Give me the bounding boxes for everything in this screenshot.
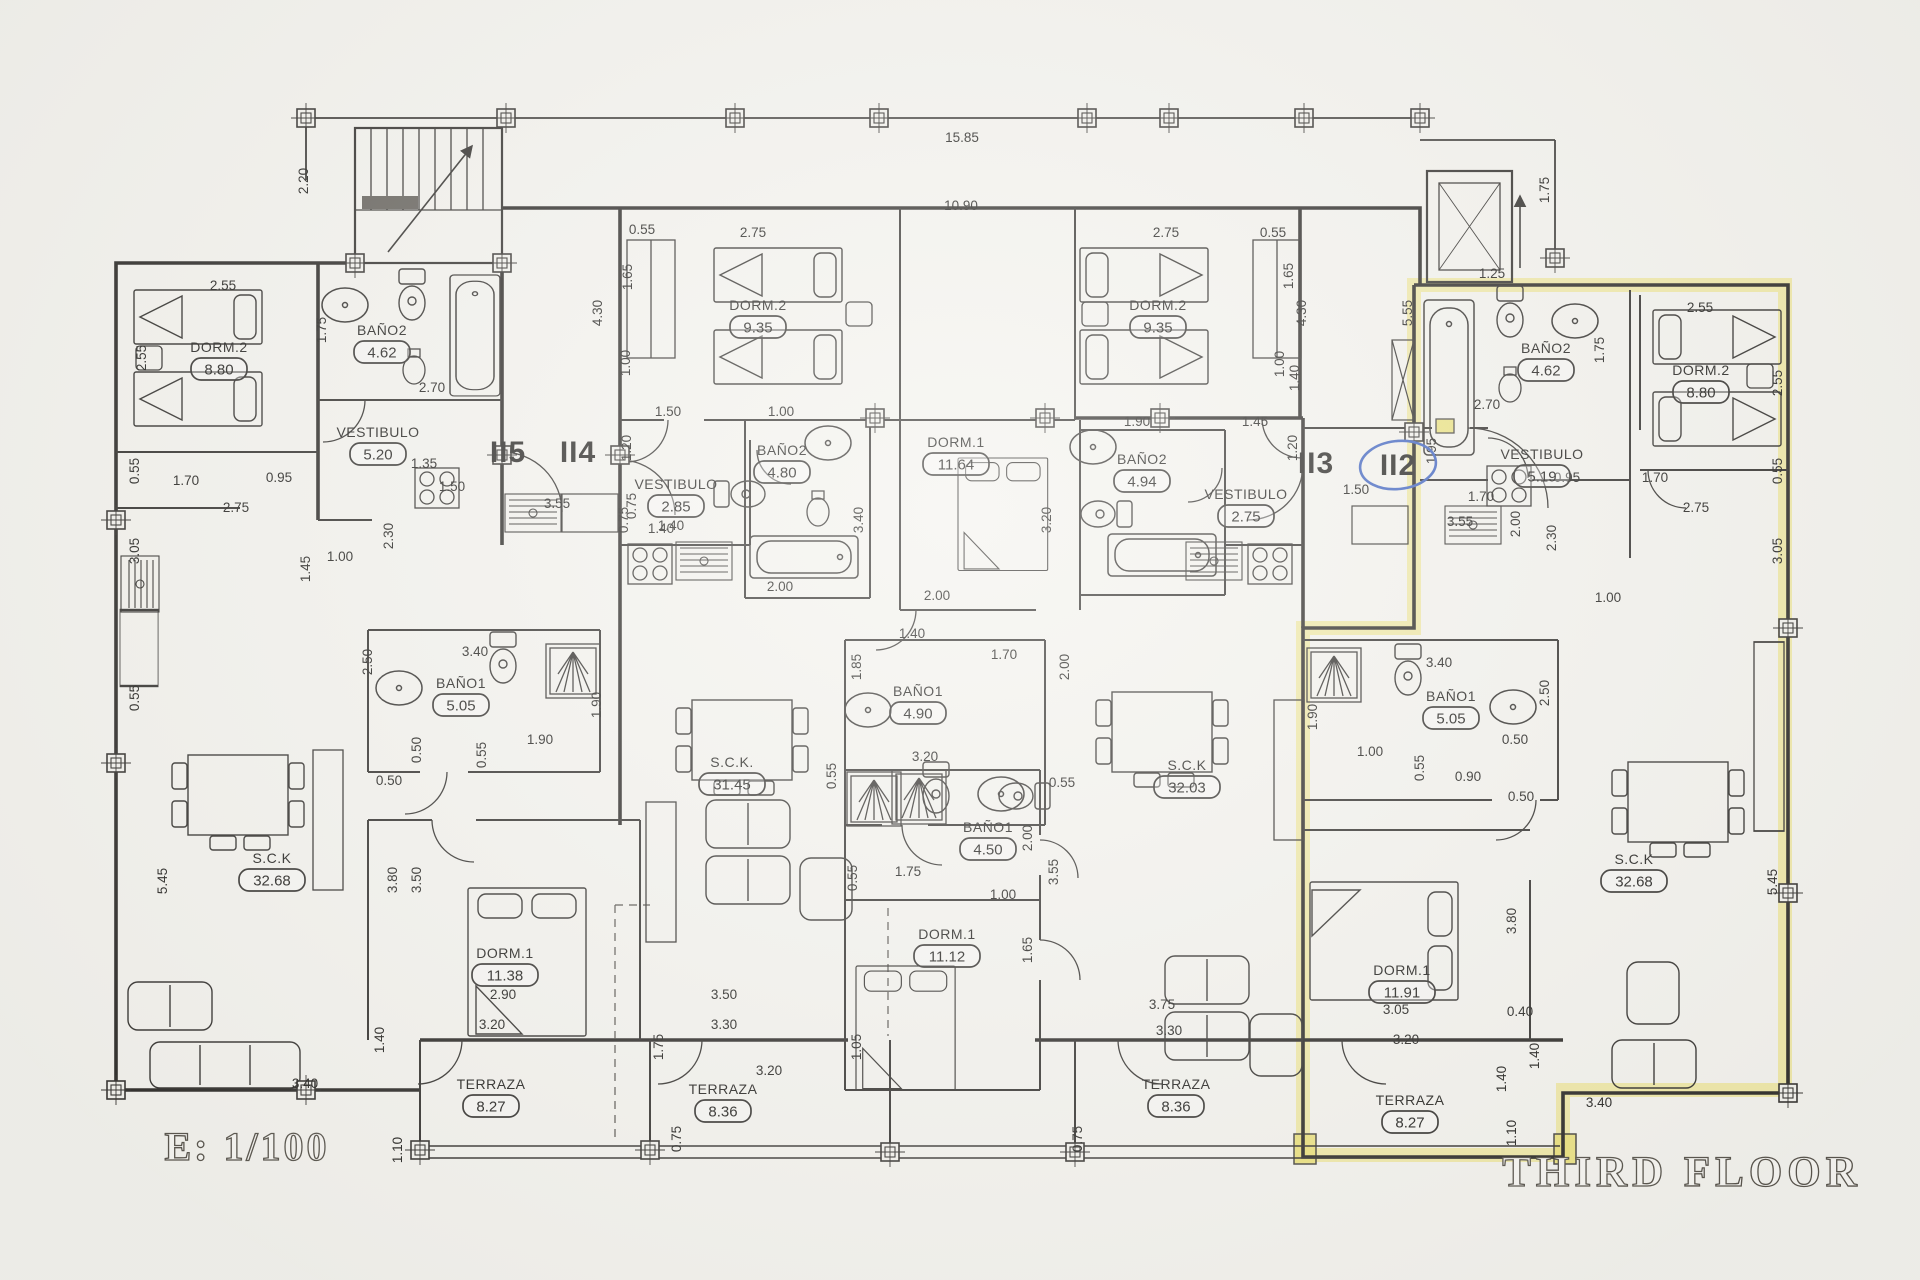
dimension-label: 2.70 [419, 380, 445, 395]
dimension-label: 1.50 [1343, 482, 1369, 497]
dimension-label: 2.75 [1683, 500, 1709, 515]
dimension-label: 0.55 [1770, 458, 1785, 484]
room-area-value: 2.75 [1231, 509, 1260, 526]
dimension-label: 1.40 [658, 518, 684, 533]
room-area-value: 11.38 [487, 968, 523, 985]
dimension-label: 1.40 [372, 1027, 387, 1053]
dimension-label: 2.75 [1153, 225, 1179, 240]
dimension-label: 4.30 [590, 300, 605, 326]
dimension-label: 1.00 [1272, 351, 1287, 377]
dimension-label: 1.40 [1287, 365, 1302, 391]
dimension-label: 10.90 [944, 198, 978, 213]
dimension-label: 1.50 [655, 404, 681, 419]
scale-label: E: 1/100 [164, 1124, 329, 1169]
dimension-label: 3.75 [1149, 997, 1175, 1012]
dimension-label: 1.00 [1595, 590, 1621, 605]
dimension-label: 2.90 [490, 987, 516, 1002]
dimension-label: 3.55 [1447, 514, 1473, 529]
room-name: DORM.1 [918, 926, 975, 942]
dimension-label: 0.55 [1049, 775, 1075, 790]
room-name: BAÑO1 [436, 675, 486, 691]
room-name: DORM.2 [1672, 362, 1729, 378]
room-area-value: 31.45 [713, 777, 751, 794]
room-label-bao2-ii4: BAÑO24.80 [754, 442, 810, 483]
room-area-value: 5.05 [1436, 711, 1465, 728]
room-name: S.C.K [252, 850, 291, 866]
room-area-value: 5.05 [446, 698, 475, 715]
room-name: TERRAZA [457, 1076, 526, 1092]
dimension-label: 3.40 [1586, 1095, 1612, 1110]
room-label-bao2-ii2: BAÑO24.62 [1518, 340, 1574, 381]
dimension-label: 1.65 [620, 264, 635, 290]
dimension-label: 1.75 [1537, 177, 1552, 203]
room-label-bao2-ii3: BAÑO24.94 [1114, 451, 1170, 492]
room-area-value: 4.62 [1531, 363, 1560, 380]
dimension-label: 0.55 [1260, 225, 1286, 240]
unit-label-ii4: II4 [560, 436, 596, 469]
dimension-label: 3.20 [756, 1063, 782, 1078]
dimension-label: 3.30 [1156, 1023, 1182, 1038]
room-area-value: 9.35 [743, 320, 772, 337]
room-area-value: 4.90 [903, 706, 932, 723]
dimension-label: 1.40 [1494, 1066, 1509, 1092]
room-label-dorm1-ii2: DORM.111.91 [1369, 962, 1435, 1003]
dimension-label: 0.55 [474, 742, 489, 768]
room-name: S.C.K [1167, 757, 1206, 773]
room-label-bao2-ii5: BAÑO24.62 [354, 322, 410, 363]
dimension-label: 1.90 [527, 732, 553, 747]
dimension-label: 3.80 [1504, 908, 1519, 934]
dimension-label: 1.85 [849, 654, 864, 680]
room-area-value: 5.20 [363, 447, 392, 464]
dimension-label: 3.20 [479, 1017, 505, 1032]
dimension-label: 1.70 [1468, 489, 1494, 504]
unit-id: II5 [490, 436, 526, 469]
dimension-label: 2.55 [134, 345, 149, 371]
room-area-value: 11.91 [1384, 985, 1420, 1002]
dimension-label: 2.75 [223, 500, 249, 515]
dimension-label: 1.00 [990, 887, 1016, 902]
room-name: BAÑO1 [1426, 688, 1476, 704]
dimension-label: 1.45 [298, 556, 313, 582]
room-name: DORM.1 [927, 434, 984, 450]
room-name: VESTIBULO [634, 476, 717, 492]
floor-title: THIRD FLOOR [1502, 1149, 1862, 1196]
room-label-bao1-ii2: BAÑO15.05 [1423, 688, 1479, 729]
room-name: VESTIBULO [1204, 486, 1287, 502]
dimension-label: 0.40 [1507, 1004, 1533, 1019]
room-label-dorm2-ii3: DORM.29.35 [1129, 297, 1186, 338]
dimension-label: 2.70 [1474, 397, 1500, 412]
dimension-label: 1.70 [173, 473, 199, 488]
dimension-label: 3.55 [544, 496, 570, 511]
unit-label-ii5: II5 [490, 436, 526, 469]
dimension-label: 0.50 [409, 737, 424, 763]
dimension-label: 2.00 [1057, 654, 1072, 680]
room-label-dorm2-ii5: DORM.28.80 [190, 339, 247, 380]
room-label-terraza-ii5: TERRAZA8.27 [457, 1076, 526, 1117]
dimension-label: 3.20 [1039, 507, 1054, 533]
dimension-label: 3.30 [711, 1017, 737, 1032]
dimension-label: 1.00 [768, 404, 794, 419]
room-label-bao1-ii5: BAÑO15.05 [433, 675, 489, 716]
dimension-label: 1.70 [991, 647, 1017, 662]
room-label-terraza-ii3: TERRAZA8.36 [1142, 1076, 1211, 1117]
room-name: DORM.2 [729, 297, 786, 313]
dimension-label: 0.55 [629, 222, 655, 237]
dimension-label: 2.55 [1687, 300, 1713, 315]
dimension-label: 0.90 [1455, 769, 1481, 784]
dimension-label: 0.75 [624, 493, 639, 519]
dimension-label: 2.30 [1544, 525, 1559, 551]
room-name: BAÑO2 [1117, 451, 1167, 467]
room-label-bao1-ii3: BAÑO14.50 [960, 819, 1016, 860]
dimension-label: 4.30 [1294, 300, 1309, 326]
dimension-label: 2.00 [767, 579, 793, 594]
room-area-value: 4.50 [973, 842, 1002, 859]
dimension-label: 2.50 [1537, 680, 1552, 706]
room-name: VESTIBULO [336, 424, 419, 440]
dimension-label: 3.05 [1383, 1002, 1409, 1017]
room-area-value: 4.80 [767, 465, 796, 482]
room-label-dorm2-ii4: DORM.29.35 [729, 297, 786, 338]
room-label-dorm1-ii4: DORM.111.64 [923, 434, 989, 475]
room-name: BAÑO2 [757, 442, 807, 458]
dimension-label: 1.75 [314, 317, 329, 343]
dimension-label: 3.20 [1393, 1032, 1419, 1047]
dimension-label: 0.50 [1502, 732, 1528, 747]
dimension-label: 3.40 [462, 644, 488, 659]
room-name: TERRAZA [1376, 1092, 1445, 1108]
dimension-label: 2.00 [1020, 825, 1035, 851]
dimension-label: 1.65 [1020, 937, 1035, 963]
room-area-value: 8.27 [476, 1099, 505, 1116]
dimension-label: 1.10 [390, 1137, 405, 1163]
dimension-label: 1.35 [411, 456, 437, 471]
dimension-label: 1.00 [1357, 744, 1383, 759]
room-area-value: 11.12 [929, 949, 965, 966]
room-name: VESTIBULO [1500, 446, 1583, 462]
dimension-label: 1.50 [439, 479, 465, 494]
room-area-value: 9.35 [1143, 320, 1172, 337]
dimension-label: 1.45 [1242, 414, 1268, 429]
dimension-label: 1.65 [1281, 263, 1296, 289]
room-name: DORM.2 [190, 339, 247, 355]
room-area-value: 8.36 [708, 1104, 737, 1121]
room-area-value: 32.68 [1615, 874, 1653, 891]
room-area-value: 4.62 [367, 345, 396, 362]
dimension-label: 5.45 [155, 868, 170, 894]
dimension-label: 3.50 [711, 987, 737, 1002]
dimension-label: 1.75 [651, 1034, 666, 1060]
dimension-label: 1.70 [1642, 470, 1668, 485]
dimension-label: 2.00 [924, 588, 950, 603]
room-name: BAÑO1 [893, 683, 943, 699]
room-area-value: 8.80 [204, 362, 233, 379]
room-area-value: 11.64 [938, 457, 974, 474]
dimension-label: 0.55 [1412, 755, 1427, 781]
unit-id: II3 [1298, 447, 1334, 480]
room-name: BAÑO2 [357, 322, 407, 338]
dimension-label: 1.40 [1527, 1043, 1542, 1069]
dimension-label: 0.95 [266, 470, 292, 485]
unit-label-ii3: II3 [1298, 447, 1334, 480]
dimension-label: 1.90 [589, 692, 604, 718]
room-area-value: 8.36 [1161, 1099, 1190, 1116]
room-name: S.C.K. [710, 754, 753, 770]
dimension-label: 3.05 [127, 538, 142, 564]
dimension-label: 0.55 [824, 763, 839, 789]
dimension-label: 2.55 [210, 278, 236, 293]
dimension-label: 1.75 [1592, 337, 1607, 363]
dimension-label: 0.75 [669, 1126, 684, 1152]
room-name: BAÑO1 [963, 819, 1013, 835]
dimension-label: 3.80 [385, 867, 400, 893]
dimension-label: 2.50 [360, 649, 375, 675]
unit-id: II2 [1380, 449, 1416, 482]
dimension-label: 2.30 [381, 523, 396, 549]
dimension-label: 1.40 [899, 626, 925, 641]
unit-id: II4 [560, 436, 596, 469]
dimension-label: 1.20 [619, 435, 634, 461]
floor-plan-sheet: 15.8510.902.201.751.252.552.551.752.700.… [0, 0, 1920, 1280]
room-label-terraza-ii2: TERRAZA8.27 [1376, 1092, 1445, 1133]
room-name: DORM.1 [476, 945, 533, 961]
dimension-label: 15.85 [945, 130, 979, 145]
dimension-label: 1.00 [618, 350, 633, 376]
dimension-label: 3.40 [1426, 655, 1452, 670]
dimension-label: 1.75 [895, 864, 921, 879]
room-label-dorm1-ii3: DORM.111.12 [914, 926, 980, 967]
room-area-value: 5.19 [1527, 469, 1556, 486]
dimension-label: 1.90 [1305, 704, 1320, 730]
dimension-label: 2.00 [1508, 511, 1523, 537]
room-name: TERRAZA [689, 1081, 758, 1097]
room-name: BAÑO2 [1521, 340, 1571, 356]
dimension-label: 1.25 [1479, 266, 1505, 281]
dimension-label: 3.20 [912, 749, 938, 764]
room-name: TERRAZA [1142, 1076, 1211, 1092]
dimension-label: 1.90 [1124, 414, 1150, 429]
dimension-label: 5.55 [1400, 300, 1415, 326]
room-area-value: 8.80 [1686, 385, 1715, 402]
room-area-value: 4.94 [1127, 474, 1156, 491]
room-area-value: 8.27 [1395, 1115, 1424, 1132]
room-label-dorm2-ii2: DORM.28.80 [1672, 362, 1729, 403]
dimension-label: 1.05 [849, 1034, 864, 1060]
dimension-label: 0.50 [1508, 789, 1534, 804]
dimension-label: 0.75 [1070, 1126, 1085, 1152]
room-name: DORM.2 [1129, 297, 1186, 313]
floor-plan-canvas: 15.8510.902.201.751.252.552.551.752.700.… [0, 0, 1920, 1280]
dimension-label: 1.10 [1504, 1120, 1519, 1146]
dimension-label: 2.75 [740, 225, 766, 240]
room-label-bao1-ii4: BAÑO14.90 [890, 683, 946, 724]
dimension-label: 2.55 [1770, 370, 1785, 396]
dimension-label: 0.55 [845, 865, 860, 891]
dimension-label: 0.55 [127, 458, 142, 484]
room-label-terraza-ii4: TERRAZA8.36 [689, 1081, 758, 1122]
dimension-label: 0.50 [376, 773, 402, 788]
dimension-label: 5.45 [1765, 869, 1780, 895]
room-area-value: 32.68 [253, 873, 291, 890]
dimension-label: 3.40 [292, 1076, 318, 1091]
room-area-value: 2.85 [661, 499, 690, 516]
room-name: DORM.1 [1373, 962, 1430, 978]
dimension-label: 2.20 [296, 168, 311, 194]
room-area-value: 32.03 [1168, 780, 1206, 797]
room-label-dorm1-ii5: DORM.111.38 [472, 945, 538, 986]
room-name: S.C.K [1614, 851, 1653, 867]
dimension-label: 0.55 [127, 685, 142, 711]
dimension-label: 1.00 [327, 549, 353, 564]
dimension-label: 3.55 [1046, 859, 1061, 885]
dimension-label: 3.05 [1770, 538, 1785, 564]
dimension-label: 3.40 [851, 507, 866, 533]
dimension-label: 3.50 [409, 867, 424, 893]
